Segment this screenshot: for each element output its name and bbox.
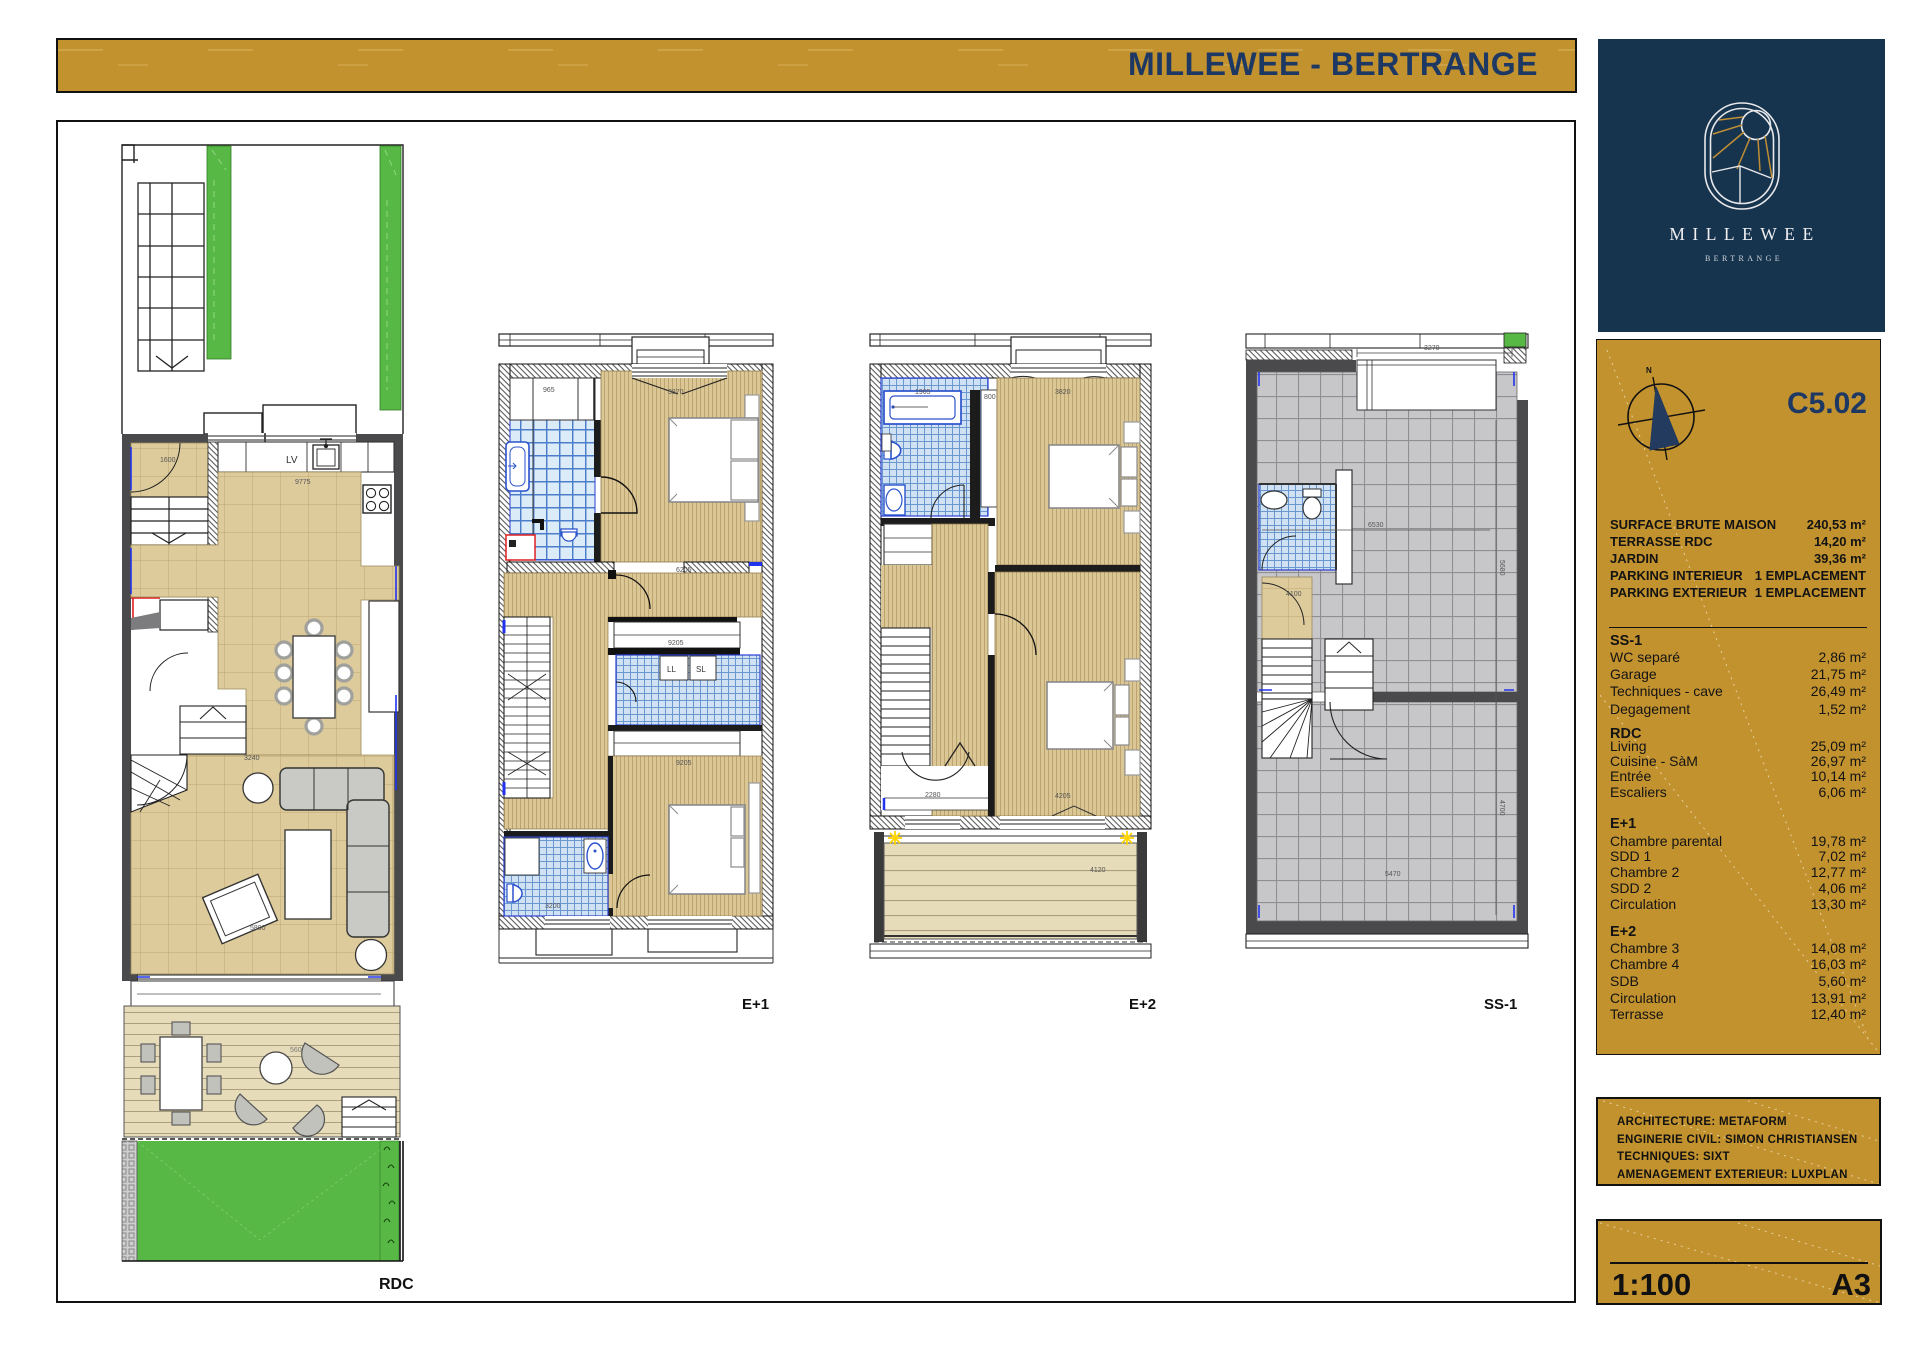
svg-text:3820: 3820 (1055, 389, 1071, 396)
svg-text:4120: 4120 (1090, 867, 1106, 874)
svg-text:1600: 1600 (160, 457, 176, 464)
svg-text:5800: 5800 (250, 925, 266, 932)
svg-text:LV: LV (286, 455, 298, 466)
svg-text:6530: 6530 (1368, 522, 1384, 529)
svg-text:4100: 4100 (1286, 591, 1302, 598)
svg-text:9205: 9205 (676, 760, 692, 767)
svg-text:BERTRANGE: BERTRANGE (1705, 254, 1783, 263)
svg-text:9775: 9775 (295, 479, 311, 486)
svg-text:560: 560 (290, 1047, 302, 1054)
svg-text:965: 965 (543, 387, 555, 394)
svg-text:3240: 3240 (244, 755, 260, 762)
svg-text:3200: 3200 (545, 903, 561, 910)
svg-text:6205: 6205 (676, 567, 692, 574)
svg-text:3870: 3870 (668, 389, 684, 396)
svg-text:9205: 9205 (668, 640, 684, 647)
svg-text:5680: 5680 (1498, 560, 1505, 576)
svg-text:N: N (1646, 366, 1652, 375)
svg-text:SL: SL (696, 665, 706, 674)
svg-text:1965: 1965 (915, 389, 931, 396)
svg-text:MILLEWEE: MILLEWEE (1669, 224, 1820, 244)
svg-text:800: 800 (984, 394, 996, 401)
svg-text:4700: 4700 (1498, 800, 1505, 816)
svg-text:3270: 3270 (1424, 345, 1440, 352)
svg-text:LL: LL (667, 665, 676, 674)
svg-text:4205: 4205 (1055, 793, 1071, 800)
svg-text:5470: 5470 (1385, 871, 1401, 878)
